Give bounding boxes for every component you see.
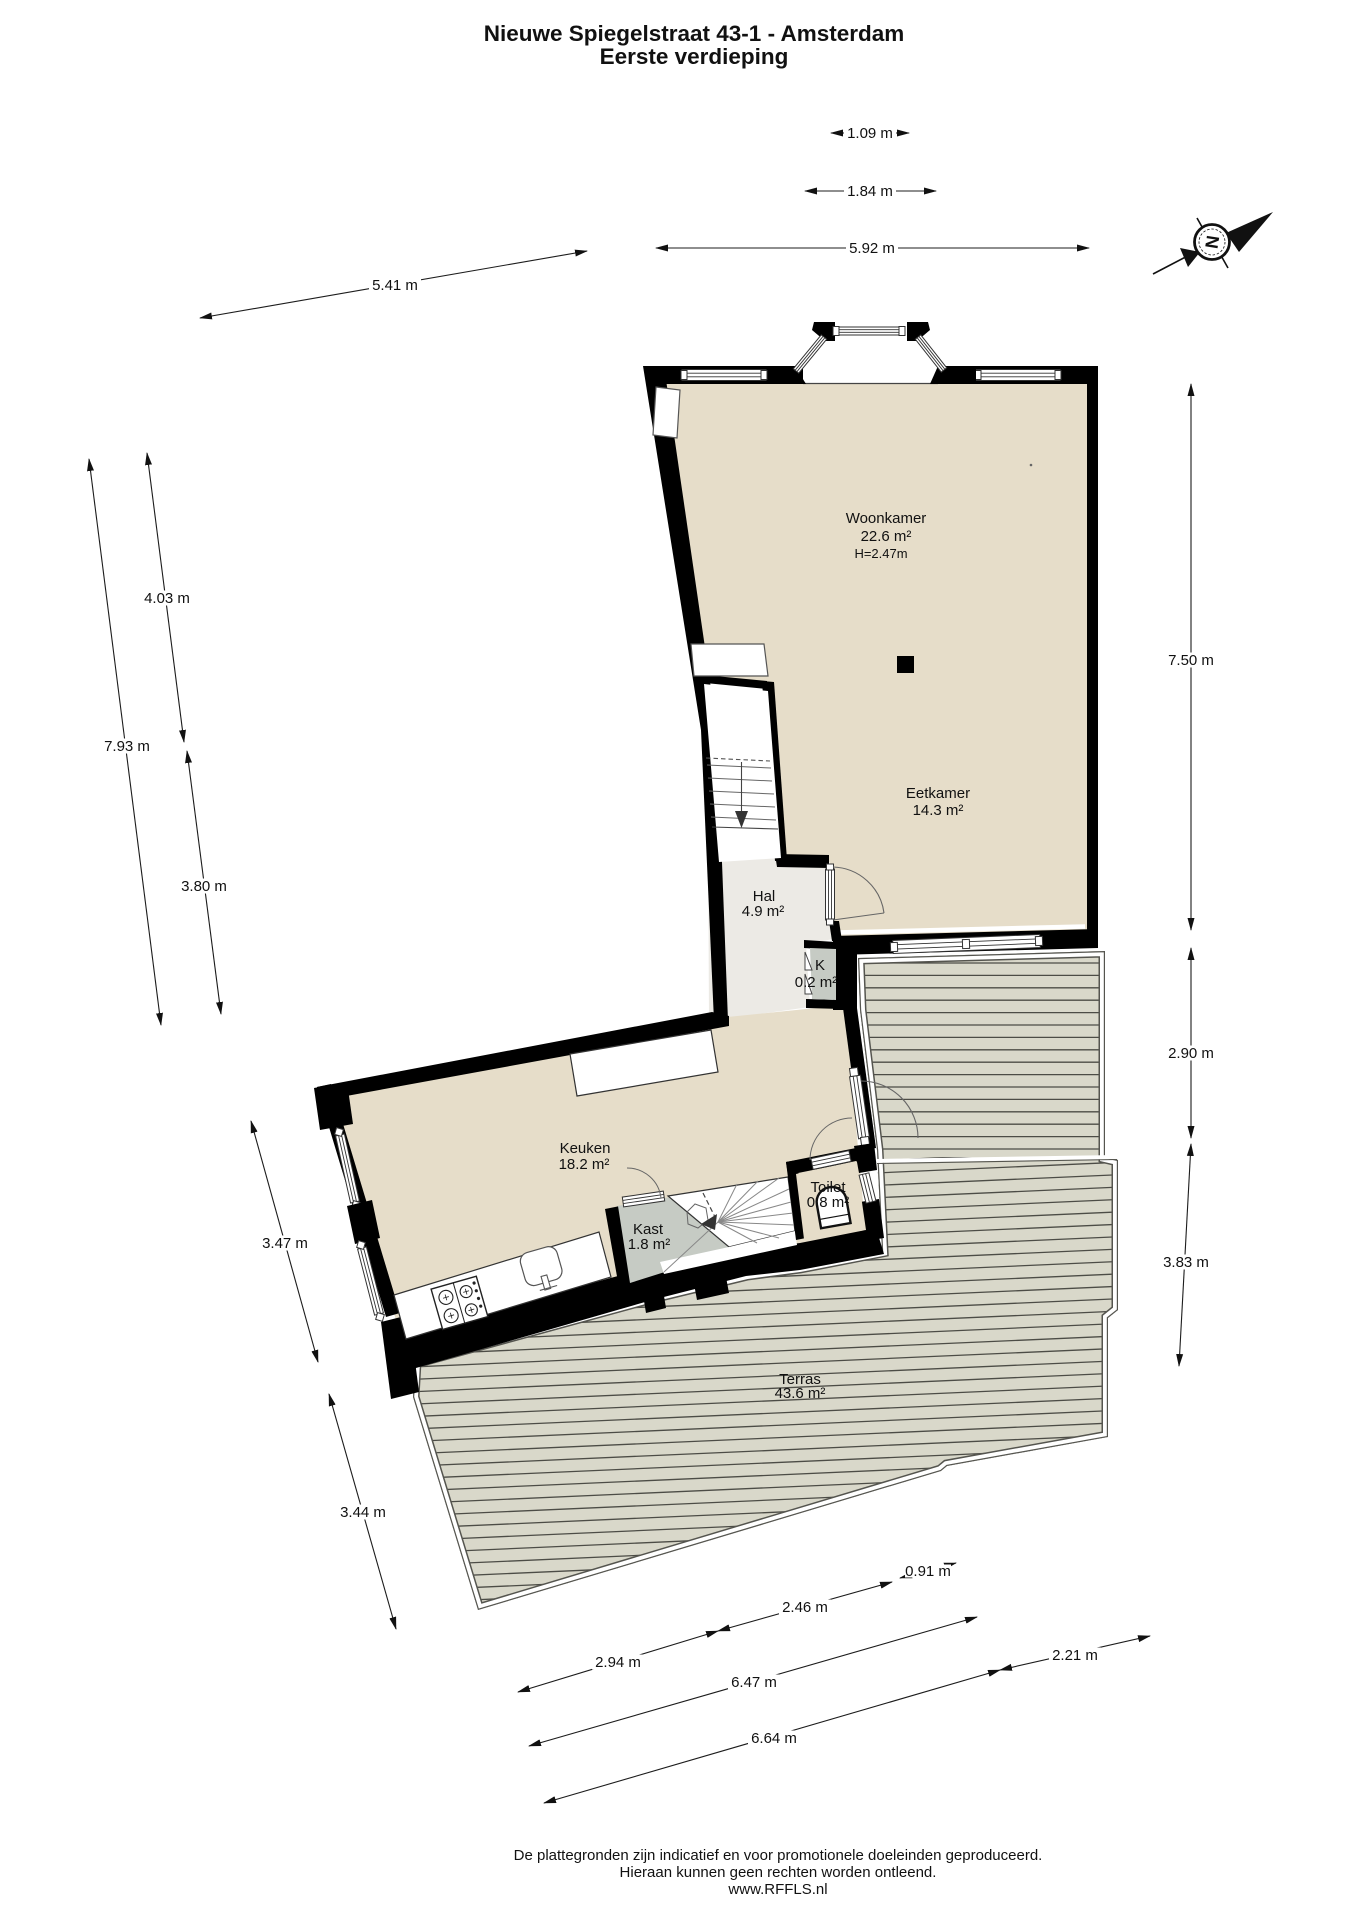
svg-text:6.47 m: 6.47 m [731,1674,777,1691]
svg-text:22.6 m²: 22.6 m² [861,528,912,545]
svg-text:3.80 m: 3.80 m [181,878,227,895]
svg-text:18.2 m²: 18.2 m² [559,1156,610,1173]
svg-text:1.84 m: 1.84 m [847,183,893,200]
svg-text:4.9 m²: 4.9 m² [742,903,785,920]
svg-text:2.21 m: 2.21 m [1052,1647,1098,1664]
svg-text:Woonkamer: Woonkamer [846,510,927,527]
svg-text:5.92 m: 5.92 m [849,240,895,257]
svg-text:7.93 m: 7.93 m [104,738,150,755]
svg-text:2.90 m: 2.90 m [1168,1045,1214,1062]
svg-text:www.RFFLS.nl: www.RFFLS.nl [727,1881,827,1898]
svg-text:3.44 m: 3.44 m [340,1504,386,1521]
svg-text:4.03 m: 4.03 m [144,590,190,607]
svg-text:0.8 m²: 0.8 m² [807,1194,850,1211]
svg-text:3.83 m: 3.83 m [1163,1254,1209,1271]
svg-text:Nieuwe Spiegelstraat 43-1 - Am: Nieuwe Spiegelstraat 43-1 - Amsterdam [484,21,905,46]
svg-text:2.94 m: 2.94 m [595,1654,641,1671]
svg-text:5.41 m: 5.41 m [372,277,418,294]
svg-text:6.64 m: 6.64 m [751,1730,797,1747]
svg-text:2.46 m: 2.46 m [782,1599,828,1616]
svg-text:0.2 m²: 0.2 m² [795,974,838,991]
svg-text:43.6 m²: 43.6 m² [775,1385,826,1402]
svg-text:3.47 m: 3.47 m [262,1235,308,1252]
svg-text:Keuken: Keuken [560,1140,611,1157]
svg-text:De plattegronden zijn indicati: De plattegronden zijn indicatief en voor… [514,1847,1043,1864]
svg-text:7.50 m: 7.50 m [1168,652,1214,669]
svg-text:Hieraan kunnen geen rechten wo: Hieraan kunnen geen rechten worden ontle… [620,1864,937,1881]
svg-text:H=2.47m: H=2.47m [854,546,907,561]
svg-text:1.8 m²: 1.8 m² [628,1236,671,1253]
svg-text:Eerste verdieping: Eerste verdieping [600,44,789,69]
svg-text:0.91 m: 0.91 m [905,1563,951,1580]
svg-text:1.09 m: 1.09 m [847,125,893,142]
svg-text:K: K [815,957,825,974]
svg-text:14.3 m²: 14.3 m² [913,802,964,819]
svg-text:Eetkamer: Eetkamer [906,785,970,802]
